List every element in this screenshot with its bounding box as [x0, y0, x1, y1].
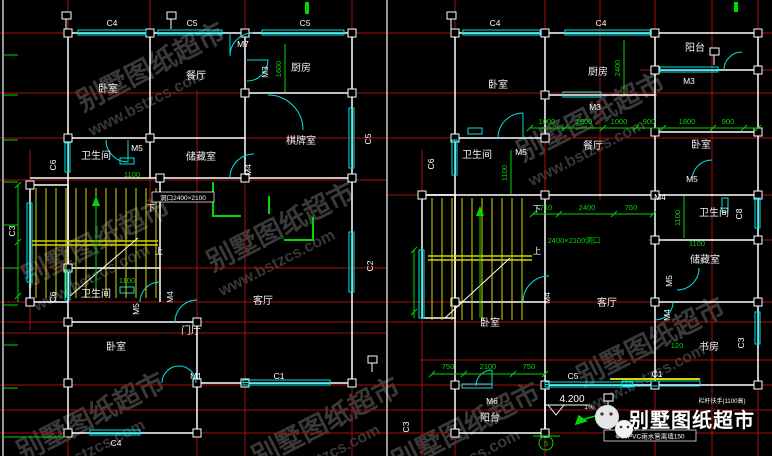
window-label-c4: C4	[107, 18, 118, 28]
dim-750: 750	[523, 362, 536, 371]
dim-900: 900	[722, 117, 735, 126]
stair-up-label: 上	[155, 246, 164, 256]
wechat-icon	[595, 405, 619, 429]
opening-size-note: 2400×2100洞口	[548, 236, 601, 245]
door-label-m5: M5	[515, 147, 527, 157]
room-label-bathroom: 卫生间	[81, 149, 111, 162]
room-label-kitchen: 厨房	[291, 61, 311, 74]
dim-1800: 1800	[679, 117, 696, 126]
room-label-dining: 餐厅	[583, 139, 603, 152]
door-label-m7: M7	[237, 39, 249, 49]
door-label-m5: M5	[664, 275, 674, 287]
dim-1100: 1100	[119, 276, 135, 285]
room-label-balcony: 阳台	[480, 411, 500, 424]
stair-up-label: 上	[533, 246, 542, 256]
dim-710: 710	[540, 203, 553, 212]
door-label-m4: M4	[243, 164, 253, 176]
window-label-c3: C3	[401, 421, 411, 432]
room-label-foyer: 门厅	[181, 324, 201, 337]
dim-1100: 1100	[673, 210, 682, 226]
window-label-c8: C8	[734, 208, 744, 219]
railing-note: 栏杆扶手(1100高)	[699, 397, 746, 405]
dim-2400: 2400	[579, 203, 596, 212]
dim-120: 120	[671, 341, 684, 350]
window-label-c6: C6	[48, 291, 58, 302]
window-label-c5: C5	[187, 18, 198, 28]
door-label-m6: M6	[486, 396, 498, 406]
level-value: 4.200	[559, 394, 584, 405]
dim-1000: 1000	[539, 117, 556, 126]
window-label-c3: C3	[736, 337, 746, 348]
window-label-c6: C6	[426, 158, 436, 169]
door-label-m4: M4	[662, 309, 672, 321]
door-label-m3: M3	[683, 76, 695, 86]
room-label-dining: 餐厅	[186, 69, 206, 82]
room-label-storage: 储藏室	[690, 253, 720, 266]
room-label-bathroom: 卫生间	[462, 148, 492, 161]
dim-1000: 1000	[611, 117, 628, 126]
room-label-game-room: 棋牌室	[286, 134, 316, 147]
room-label-balcony: 阳台	[685, 41, 705, 54]
window-label-c6: C6	[48, 159, 58, 170]
door-label-m3: M3	[589, 102, 601, 112]
room-label-bedroom: 卧室	[106, 340, 126, 353]
door-label-m4: M4	[654, 192, 666, 202]
room-label-living: 客厅	[597, 296, 617, 309]
window-label-c4: C4	[111, 438, 122, 448]
door-label-m5: M5	[686, 174, 698, 184]
window-label-c1: C1	[652, 369, 663, 379]
detail-bubble-number: 5	[544, 439, 548, 448]
cad-floorplan-screenshot: 别墅图纸超市www.bstzcs.com 别墅图纸超市www.bstzcs.co…	[0, 0, 772, 456]
dim-1800: 1800	[576, 117, 593, 126]
window-label-c4: C4	[596, 18, 607, 28]
door-label-m3: M3	[260, 66, 270, 78]
dim-2100: 2100	[480, 362, 497, 371]
door-label-m5: M5	[131, 143, 143, 153]
window-label-c5: C5	[300, 18, 311, 28]
room-label-bedroom: 卧室	[480, 316, 500, 329]
window-label-c2: C2	[365, 260, 375, 271]
dim-1100: 1100	[500, 165, 509, 181]
stair-down-label: 下	[147, 203, 156, 213]
window-label-c3: C3	[7, 225, 17, 236]
window-label-c5: C5	[568, 371, 579, 381]
room-label-bathroom: 卫生间	[81, 287, 111, 300]
dim-2400: 2400	[613, 60, 622, 77]
room-label-living: 客厅	[253, 294, 273, 307]
window-label-c4: C4	[490, 18, 501, 28]
floorplan-canvas: 别墅图纸超市www.bstzcs.com 别墅图纸超市www.bstzcs.co…	[0, 0, 772, 456]
dim-1600: 1600	[274, 61, 283, 78]
room-label-storage: 储藏室	[186, 150, 216, 163]
dim-750: 750	[442, 362, 455, 371]
door-label-m4: M4	[165, 291, 175, 303]
room-label-kitchen: 厨房	[588, 65, 608, 78]
room-label-bathroom: 卫生间	[699, 206, 729, 219]
dim-900: 900	[643, 117, 656, 126]
door-label-m1: M1	[190, 371, 202, 381]
dim-760: 760	[625, 203, 638, 212]
room-label-bedroom: 卧室	[98, 82, 118, 95]
door-label-m5: M5	[131, 303, 141, 315]
dim-1100: 1100	[689, 239, 705, 248]
dim-1100: 1100	[124, 170, 140, 179]
window-label-c1: C1	[274, 371, 285, 381]
room-label-study: 书房	[699, 340, 719, 353]
slope-value: 1%	[584, 404, 594, 411]
room-label-bedroom: 卧室	[488, 78, 508, 91]
window-label-c5: C5	[363, 133, 373, 144]
room-label-bedroom: 卧室	[691, 138, 711, 151]
brand-name: 别墅图纸超市	[628, 408, 755, 432]
opening-size-note: 洞口2400×2100	[160, 193, 206, 202]
door-label-m4: M4	[542, 292, 552, 304]
